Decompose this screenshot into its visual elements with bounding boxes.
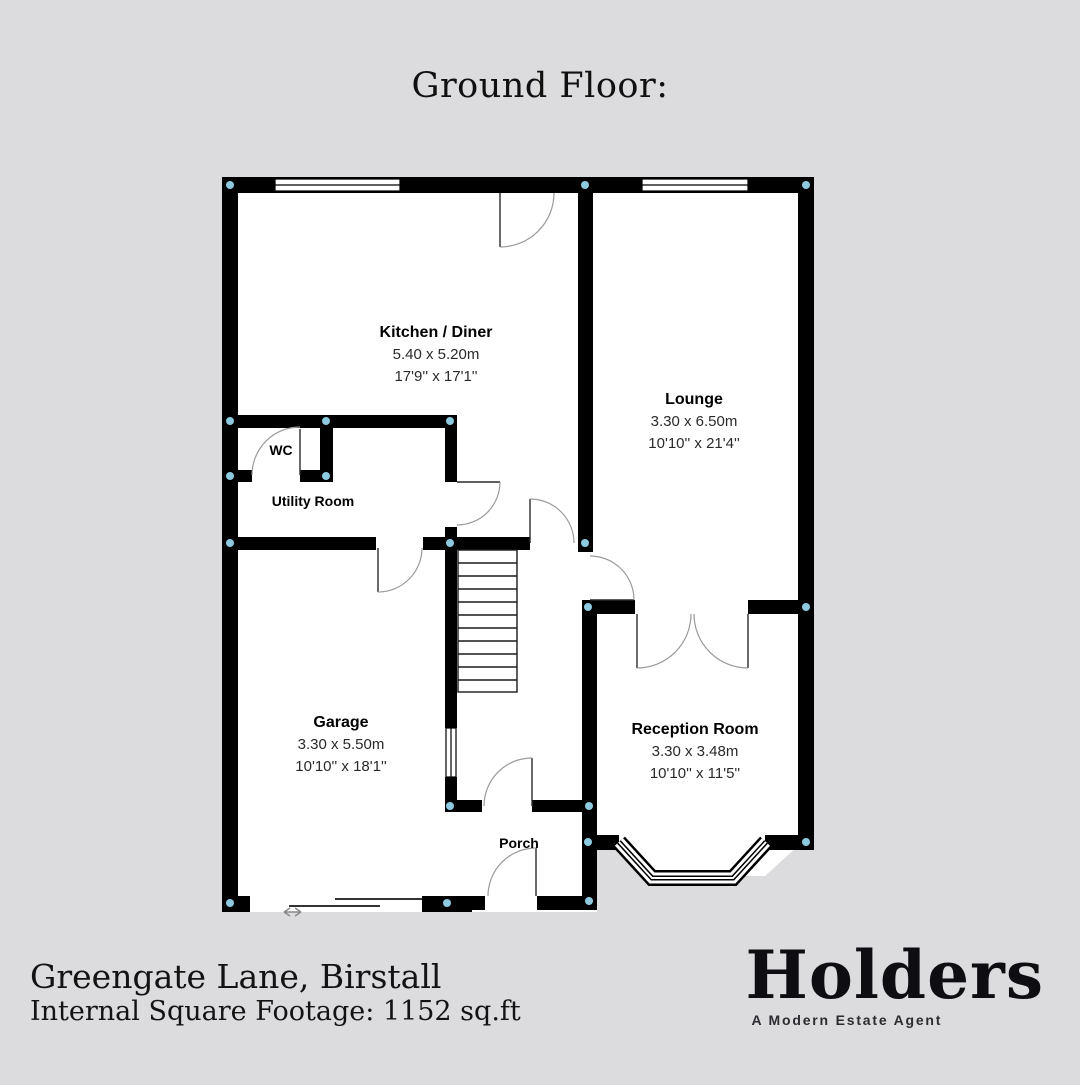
floor-plan-svg: Kitchen / Diner 5.40 x 5.20m 17'9'' x 17… [0, 0, 1080, 1080]
agency-logo: Holders [745, 942, 1044, 1008]
wc-label: WC [269, 442, 292, 458]
porch-label: Porch [499, 835, 539, 851]
reception-dims-m: 3.30 x 3.48m [652, 743, 739, 760]
reception-label: Reception Room [631, 721, 758, 738]
utility-label: Utility Room [272, 493, 354, 509]
floor-plan: Kitchen / Diner 5.40 x 5.20m 17'9'' x 17… [0, 0, 1080, 1080]
property-caption: Greengate Lane, Birstall Internal Square… [30, 958, 521, 1028]
reception-dims-ft: 10'10'' x 11'5'' [650, 765, 740, 782]
hall-window [446, 728, 456, 777]
agency-tagline: A Modern Estate Agent [745, 1012, 1044, 1028]
garage-label: Garage [313, 714, 368, 731]
lounge-dims-ft: 10'10'' x 21'4'' [648, 435, 740, 452]
kitchen-dims-m: 5.40 x 5.20m [393, 346, 480, 363]
kitchen-dims-ft: 17'9'' x 17'1'' [394, 368, 477, 385]
garage-dims-ft: 10'10'' x 18'1'' [295, 758, 387, 775]
lounge-window [642, 179, 748, 191]
internal-square-footage: Internal Square Footage: 1152 sq.ft [30, 996, 521, 1028]
property-address: Greengate Lane, Birstall [30, 958, 521, 996]
kitchen-window [275, 179, 400, 191]
garage-dims-m: 3.30 x 5.50m [298, 736, 385, 753]
lounge-dims-m: 3.30 x 6.50m [651, 413, 738, 430]
kitchen-label: Kitchen / Diner [380, 324, 493, 341]
agency-brand: Holders A Modern Estate Agent [745, 942, 1044, 1028]
stairs [458, 550, 517, 692]
lounge-label: Lounge [665, 391, 723, 408]
